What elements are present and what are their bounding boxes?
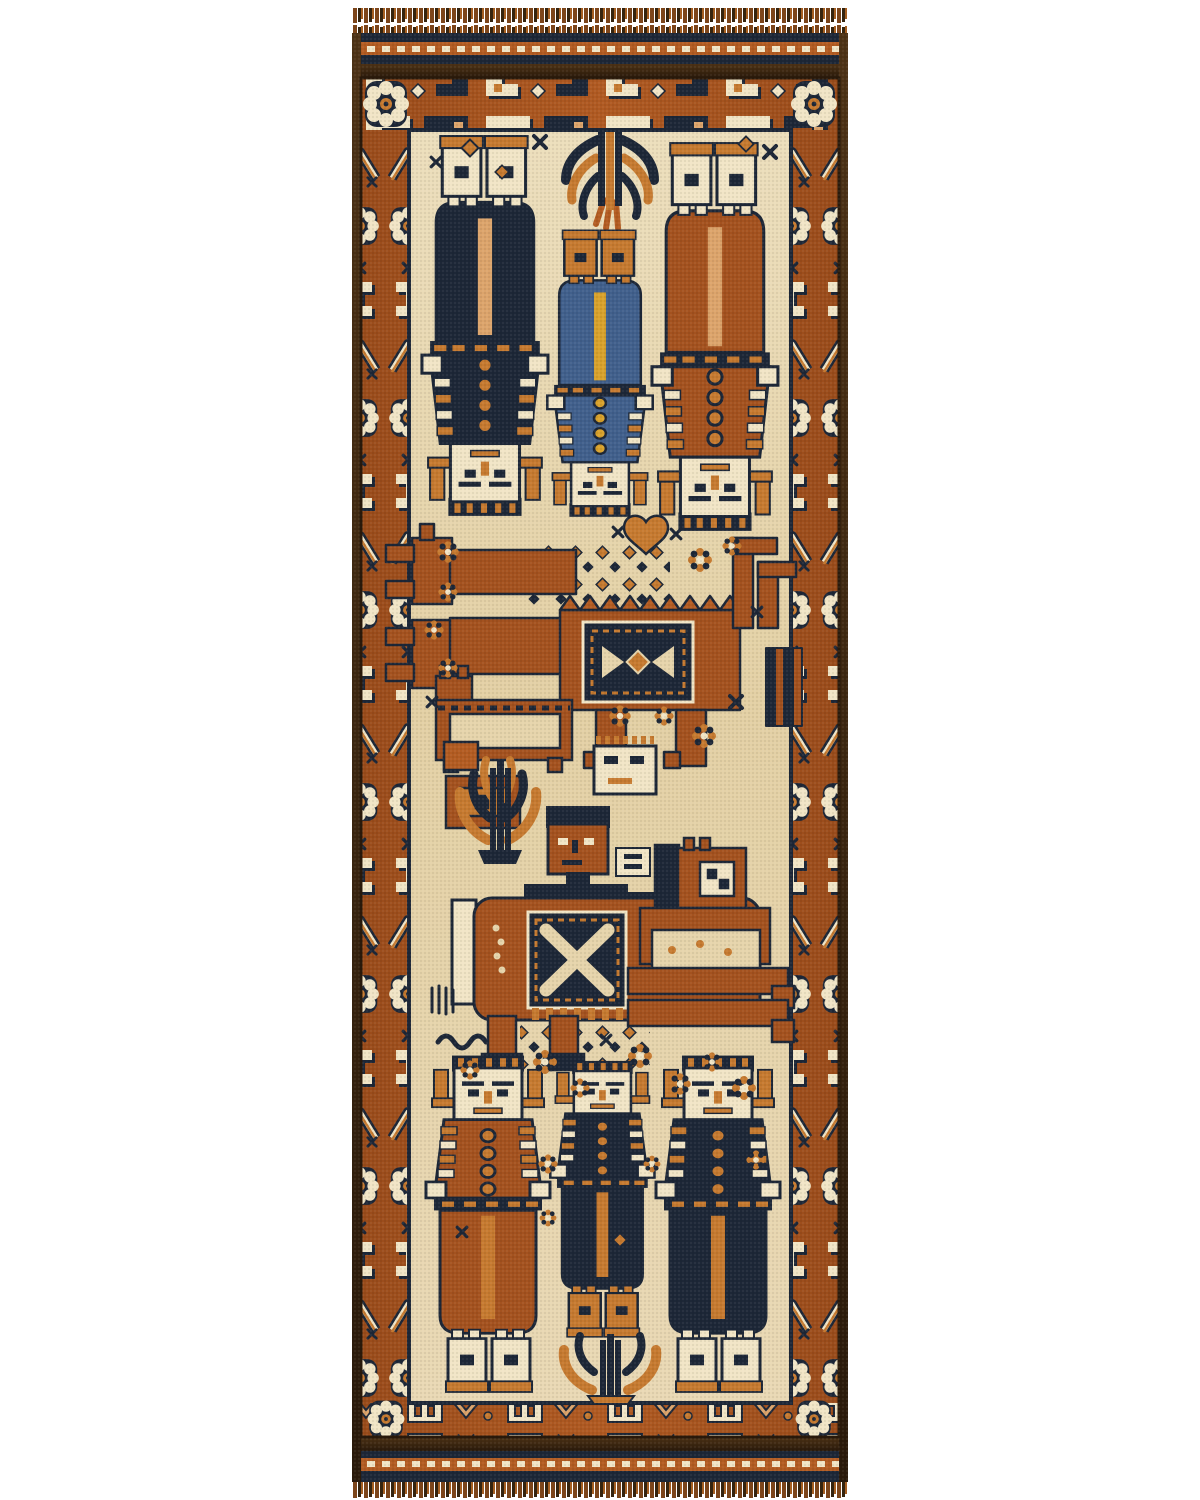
photo-backdrop (0, 0, 1200, 1500)
fringe-bottom (352, 1482, 848, 1499)
rug-photo (0, 0, 1200, 1500)
weave-texture-overlay (352, 33, 848, 1482)
fringe-top (352, 8, 848, 33)
rug (352, 8, 848, 1499)
